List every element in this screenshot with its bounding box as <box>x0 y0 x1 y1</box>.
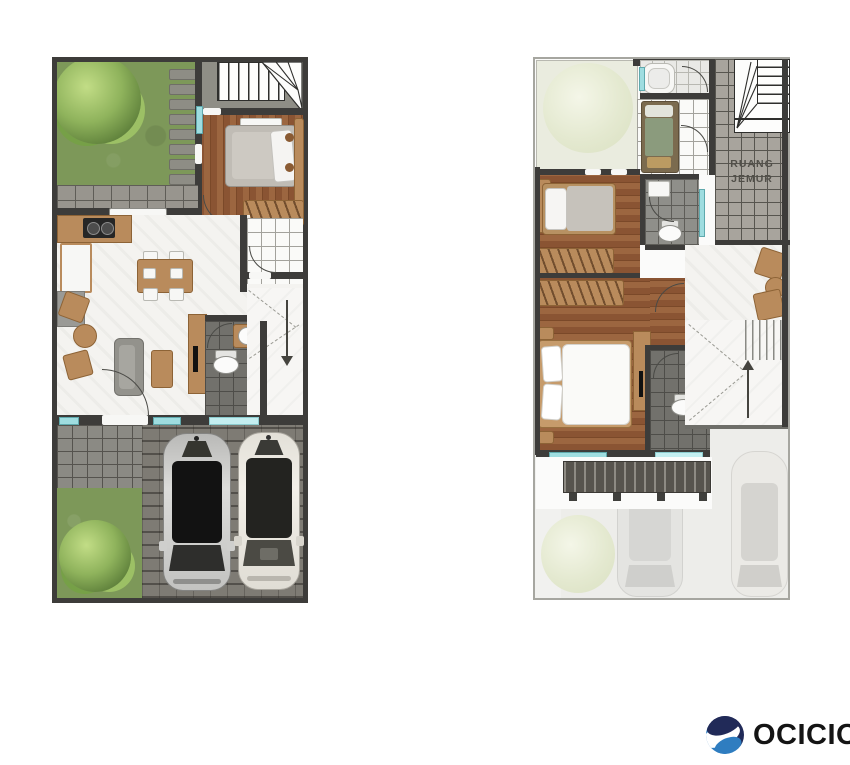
brand-logo: OCICIO <box>706 716 850 754</box>
stepping-stone <box>169 69 197 80</box>
bathroom-2 <box>645 179 699 245</box>
bathroom-top <box>640 60 710 96</box>
stepping-stone <box>169 174 197 185</box>
floor-cushion <box>752 288 785 321</box>
door-swing <box>207 323 232 348</box>
ruang-jemur-label: RUANG JEMUR <box>717 157 787 187</box>
stepping-stone <box>169 159 197 170</box>
car-roof <box>246 458 292 538</box>
stair-winder <box>735 60 758 132</box>
front-garden <box>57 62 198 185</box>
door-gap <box>203 108 221 115</box>
bathroom-window <box>209 417 259 425</box>
car-silver <box>163 433 231 591</box>
dining-chair <box>170 268 183 279</box>
stool <box>285 163 294 172</box>
stepping-stone <box>169 99 197 110</box>
bedroom-1 <box>198 115 303 225</box>
sitting-area <box>685 245 788 320</box>
stove <box>83 218 115 238</box>
door-swing <box>649 197 674 222</box>
side-garden <box>57 488 142 598</box>
fridge <box>60 243 92 293</box>
door-gap <box>195 144 202 164</box>
bedroom-2 <box>536 175 640 273</box>
wall <box>240 215 247 292</box>
car-white <box>238 432 300 590</box>
dining-chair <box>143 268 156 279</box>
tv <box>639 371 643 397</box>
nightstand <box>538 327 554 340</box>
toilet <box>658 225 682 242</box>
toilet <box>213 356 239 374</box>
window <box>196 106 203 134</box>
ocicio-logo-icon <box>706 716 744 754</box>
nightstand <box>538 431 554 444</box>
entry-door-gap <box>102 415 148 425</box>
stepping-stone <box>169 114 197 125</box>
balcony-railing <box>563 461 711 493</box>
stool <box>285 133 294 142</box>
dining-chair <box>143 288 158 301</box>
bed-master <box>538 340 632 428</box>
bed-double <box>542 183 616 235</box>
tile-pad <box>57 425 142 488</box>
dining-chair <box>169 288 184 301</box>
side-table-round <box>73 324 97 348</box>
pillow <box>541 383 563 420</box>
door-swing <box>653 353 678 378</box>
desk <box>294 118 304 206</box>
ghost-car <box>731 451 788 597</box>
stair-winder <box>262 62 303 112</box>
coffee-table <box>151 350 173 388</box>
arrow-down-icon <box>281 356 293 366</box>
window <box>59 417 79 425</box>
railing-post <box>657 493 665 501</box>
railing-post <box>569 493 577 501</box>
tree <box>57 62 141 144</box>
ground-floor-plan <box>52 57 308 603</box>
door-gap <box>249 272 271 279</box>
railing-post <box>699 493 707 501</box>
tv <box>193 346 198 372</box>
ghost-tree <box>543 63 633 153</box>
window <box>639 67 645 91</box>
car-roof <box>172 461 222 543</box>
stair-direction-line <box>286 300 288 356</box>
stepping-stone <box>169 84 197 95</box>
wall <box>260 321 267 418</box>
sink-basin <box>648 181 670 197</box>
wall <box>535 167 540 455</box>
stair-hall <box>198 62 303 112</box>
bathtub <box>643 63 675 94</box>
wall <box>685 425 788 429</box>
wardrobe <box>536 248 614 274</box>
bench <box>647 157 671 168</box>
stair-void <box>685 320 788 425</box>
bed-green <box>641 101 679 173</box>
window <box>699 189 705 237</box>
wall <box>782 59 788 427</box>
balcony <box>536 457 712 509</box>
stepping-stone <box>169 129 197 140</box>
door-swing <box>681 125 708 152</box>
ocicio-logo-text: OCICIO <box>753 719 850 752</box>
bush <box>59 520 131 592</box>
pillow <box>545 188 567 230</box>
door-swing <box>682 66 708 92</box>
bedroom-3 <box>637 99 709 175</box>
ghost-bush <box>541 515 615 593</box>
pillow <box>541 345 563 382</box>
railing-post <box>613 493 621 501</box>
stepping-stone <box>169 144 197 155</box>
stairwell <box>247 288 303 415</box>
stair-direction-line <box>747 370 749 418</box>
ghost-garden-roof <box>536 60 638 174</box>
arrow-up-icon <box>742 360 754 370</box>
upper-floor-plan: RUANG JEMUR <box>533 57 790 600</box>
wardrobe-master <box>536 280 624 306</box>
window <box>153 417 181 425</box>
